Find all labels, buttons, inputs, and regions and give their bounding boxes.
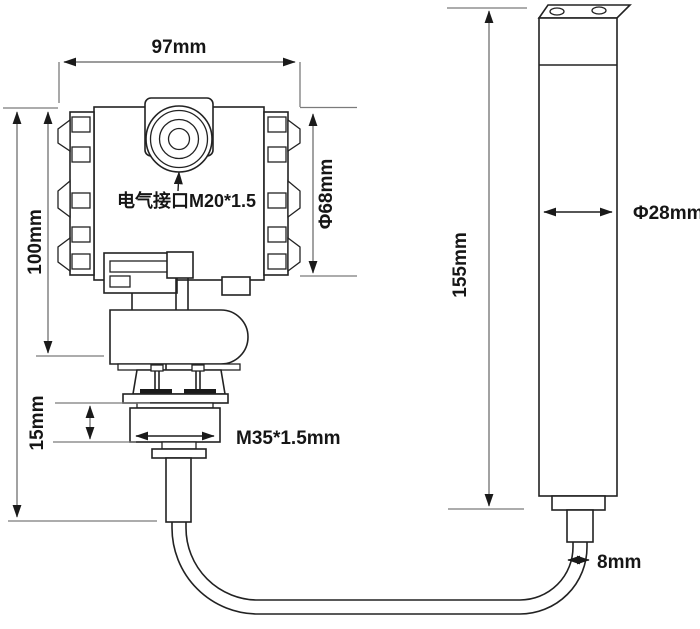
drawing-svg: 97mm 100mm Φ68mm 电气接口M20*1.5 15mm M35*1.… [0,0,700,629]
dimension-gland-height: 15mm [27,396,48,451]
cap-notch [58,120,70,151]
hex-nut [130,408,220,442]
dimension-lines [3,8,612,560]
cap-rib [268,227,286,242]
electrical-port-pointer-arrow [178,172,179,191]
port-hole [169,129,190,150]
process-connection [123,365,228,522]
cap-notch [58,181,70,217]
terminal-slot [110,261,168,272]
terminal-slot [110,276,130,287]
cap-rib [72,147,90,162]
transmitter-drawing [58,98,300,522]
dimension-cable-diameter: 8mm [597,552,641,573]
cap-rib [268,254,286,269]
cap-rib [268,147,286,162]
cable-inner-edge [186,522,573,600]
probe-cable-gland [567,510,593,542]
electrical-entry-port [145,98,213,172]
valve-body [110,310,248,364]
label-electrical-interface: 电气接口M20*1.5 [117,190,256,211]
connector-block [167,252,193,278]
cap-notch [288,120,300,151]
cap-rib [268,117,286,132]
cap-rib [72,117,90,132]
cap-notch [288,181,300,217]
label-thread-spec: M35*1.5mm [236,428,341,449]
valve-base [118,364,240,370]
dimension-probe-length: 155mm [450,232,471,298]
cap-rib [72,227,90,242]
cap-rib [72,254,90,269]
probe-drawing [539,5,630,542]
cap-rib [72,193,90,208]
side-bracket [222,277,250,295]
probe-top-hole [550,8,564,15]
dimension-housing-height: 100mm [25,209,46,275]
nut-neck [162,442,196,449]
bolt-cap [192,365,204,371]
probe-top-hole [592,7,606,14]
cap-rib [268,193,286,208]
washer [152,449,206,458]
cap-notch [58,238,70,271]
dimension-housing-diameter: Φ68mm [316,159,337,230]
probe-body [539,18,617,496]
dimension-probe-diameter: Φ28mm [633,203,700,224]
cable-gland-pipe [166,458,191,522]
housing-left-cap [58,112,94,275]
cap-notch [288,238,300,271]
housing-right-cap [264,112,300,275]
probe-step [552,496,605,510]
dimension-drawing-canvas: 97mm 100mm Φ68mm 电气接口M20*1.5 15mm M35*1.… [0,0,700,629]
flange-plate [123,394,228,403]
bolt-cap [151,365,163,371]
cable [172,522,587,614]
dimension-housing-width: 97mm [152,37,207,58]
